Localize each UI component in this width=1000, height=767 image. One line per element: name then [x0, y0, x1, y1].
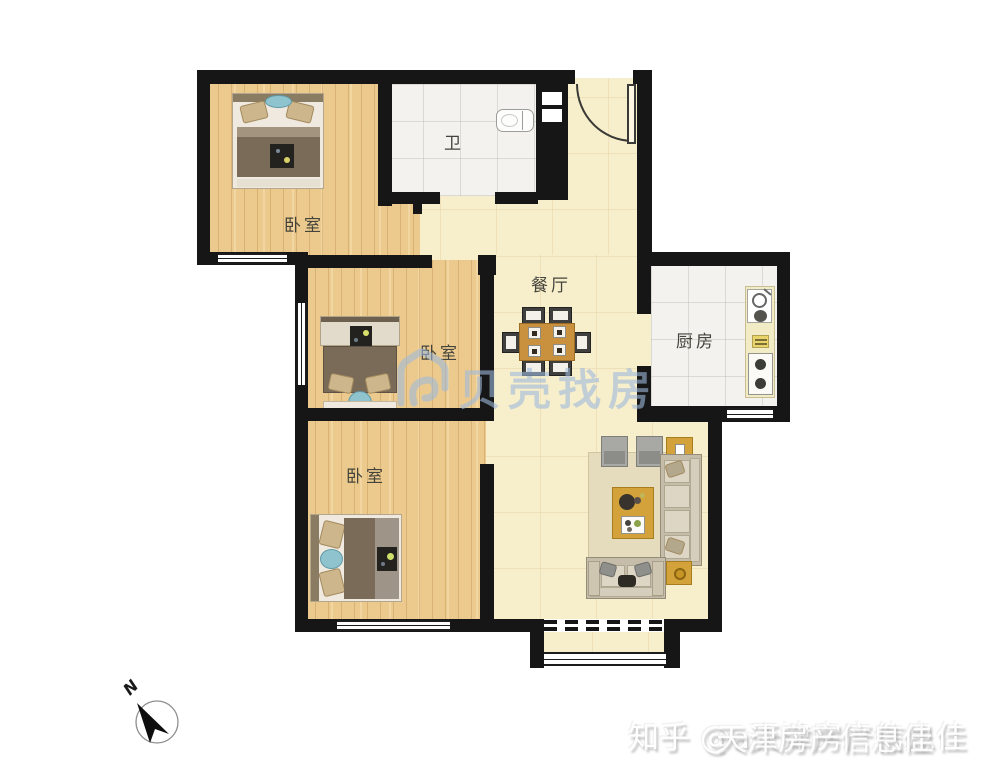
window	[296, 303, 307, 385]
pillow	[318, 568, 345, 598]
dining-chair	[522, 307, 545, 324]
kettle	[619, 494, 635, 510]
ottoman	[601, 436, 628, 467]
beike-logo-icon	[392, 348, 452, 410]
wall	[777, 252, 790, 420]
floor-plan: 卧室 卫 餐厅 厨房 卧室 卧室 贝壳找房 N 知乎 @a天津房产信息佳 天津房…	[0, 0, 1000, 767]
wall	[378, 192, 440, 204]
wall	[708, 406, 722, 632]
beike-watermark: 贝壳找房	[392, 348, 692, 412]
tv	[350, 326, 372, 346]
teal-cushion	[320, 549, 343, 569]
wall	[295, 410, 308, 632]
entry-door-leaf	[627, 84, 636, 144]
bed-foot	[237, 179, 320, 187]
ottoman	[636, 436, 663, 467]
wall	[637, 70, 652, 266]
room-label-bathroom: 卫	[444, 129, 464, 154]
window	[218, 253, 287, 264]
wall	[480, 464, 494, 632]
toilet	[496, 109, 534, 132]
balcony-window	[544, 652, 666, 666]
bed-top-bedroom	[232, 93, 324, 189]
zhihu-watermark-text-overlay: 天津房产信息佳	[716, 714, 933, 759]
living-room-set	[580, 430, 710, 610]
wall	[530, 619, 544, 668]
window	[337, 620, 450, 631]
wall	[378, 82, 392, 206]
wall	[495, 192, 538, 204]
beike-watermark-text: 贝壳找房	[458, 356, 658, 418]
compass: N	[112, 672, 202, 757]
teal-cushion	[265, 95, 292, 108]
blanket	[237, 127, 320, 177]
control-panel	[752, 335, 769, 348]
bed-bottom-bedroom	[310, 514, 402, 602]
sofa-long	[660, 454, 702, 566]
tv-cabinet	[320, 316, 400, 346]
room-label-bedroom-bottom: 卧室	[346, 462, 386, 487]
headboard	[311, 515, 319, 601]
coffee-table	[612, 487, 654, 539]
pillow	[239, 100, 269, 124]
quilt-square	[270, 144, 294, 168]
balcony-opening	[544, 619, 664, 632]
kitchen-sink	[747, 289, 772, 323]
side-table	[666, 561, 692, 585]
sofa-small	[586, 557, 666, 599]
door-stub	[413, 202, 422, 214]
bed-middle-bedroom	[320, 316, 400, 410]
room-label-dining: 餐厅	[531, 271, 571, 296]
window	[727, 408, 773, 420]
pillow	[318, 520, 345, 550]
tv-cabinet	[375, 518, 399, 599]
tv	[377, 547, 397, 571]
wall	[645, 252, 790, 266]
wall	[295, 255, 432, 268]
shaft-niche	[542, 109, 562, 122]
room-label-bedroom-top: 卧室	[284, 211, 324, 236]
shaft-niche	[542, 92, 562, 105]
dining-chair	[549, 307, 572, 324]
blanket	[344, 518, 375, 599]
stove	[748, 353, 773, 395]
kitchen-counter	[745, 286, 775, 398]
tray	[621, 516, 645, 534]
wall	[197, 70, 210, 265]
